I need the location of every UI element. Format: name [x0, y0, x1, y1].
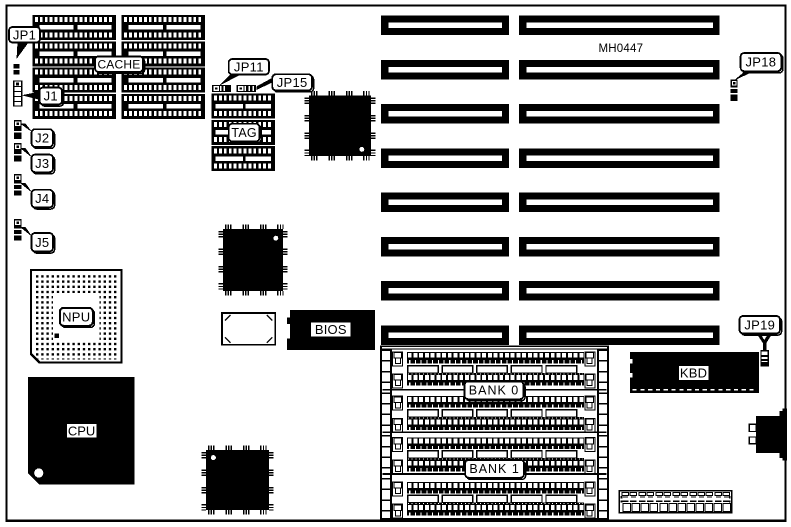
svg-text:J1: J1: [44, 89, 58, 104]
svg-text:MH0447: MH0447: [599, 43, 644, 55]
svg-text:BANK 0: BANK 0: [469, 384, 519, 398]
svg-text:JP11: JP11: [234, 59, 264, 74]
svg-text:J4: J4: [35, 191, 49, 206]
svg-text:JP18: JP18: [745, 55, 776, 70]
svg-text:KBD: KBD: [680, 366, 707, 381]
svg-text:J2: J2: [35, 131, 49, 146]
svg-text:BANK 1: BANK 1: [469, 462, 519, 476]
svg-text:J5: J5: [35, 235, 49, 250]
svg-text:JP15: JP15: [277, 75, 308, 90]
svg-text:CPU: CPU: [68, 423, 95, 438]
svg-text:CACHE: CACHE: [97, 57, 140, 71]
svg-text:JP1: JP1: [13, 27, 36, 42]
svg-text:BIOS: BIOS: [315, 322, 347, 337]
svg-text:JP19: JP19: [744, 317, 775, 332]
svg-text:TAG: TAG: [231, 126, 256, 140]
svg-text:J3: J3: [35, 156, 49, 171]
svg-text:NPU: NPU: [62, 309, 90, 324]
